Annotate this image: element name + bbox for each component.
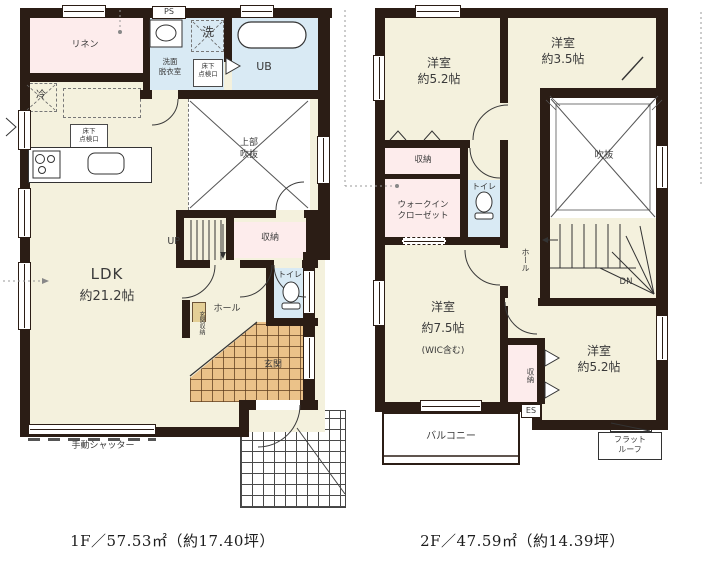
label-es: ES bbox=[521, 406, 541, 416]
label-wic: ウォークインクローゼット bbox=[389, 200, 457, 222]
label-manual-shutter: 手動シャッター bbox=[48, 441, 158, 453]
label-storage-2f-side: 収納 bbox=[510, 358, 535, 392]
label-entry-storage: 玄関収納 bbox=[193, 304, 205, 341]
label-storage-1f: 収納 bbox=[240, 233, 300, 245]
label-entry: 玄関 bbox=[254, 360, 292, 372]
wall-segment bbox=[306, 218, 318, 260]
window bbox=[420, 400, 482, 412]
label-dn: DN bbox=[612, 277, 640, 288]
window bbox=[240, 5, 274, 18]
window-wic-hatched bbox=[402, 237, 446, 245]
wall-segment bbox=[30, 73, 145, 82]
label-balcony: バルコニー bbox=[408, 430, 494, 443]
label-linen: リネン bbox=[55, 40, 115, 52]
door-opening bbox=[500, 248, 508, 286]
label-hall-1f: ホール bbox=[205, 304, 249, 316]
wall-segment bbox=[532, 420, 668, 430]
door-opening bbox=[182, 268, 190, 300]
front-door-opening bbox=[256, 400, 300, 410]
wall-segment bbox=[224, 18, 232, 62]
label-ldk: LDK約21.2帖 bbox=[57, 264, 157, 306]
wall-segment bbox=[540, 88, 550, 306]
label-room-7_5: 洋室約7.5帖(WIC含む) bbox=[399, 296, 487, 358]
door-opening bbox=[276, 210, 304, 218]
label-ub: UB bbox=[244, 60, 284, 74]
label-room-5_2-bottom: 洋室約5.2帖 bbox=[563, 344, 635, 375]
label-void-2f: 吹抜 bbox=[588, 150, 620, 162]
label-fridge: 冷 bbox=[28, 89, 54, 102]
wall-segment bbox=[318, 8, 330, 260]
window bbox=[303, 336, 315, 380]
floor-plan-canvas: リネン 冷 洗 PS 洗面脱衣室 床下点検口 床下点検口 UB 上部吹抜 UP … bbox=[0, 0, 707, 561]
label-floor-hatch-kitchen: 床下点検口 bbox=[71, 127, 107, 144]
label-washer: 洗 bbox=[196, 25, 220, 41]
door-opening bbox=[505, 298, 538, 306]
kitchen-counter bbox=[28, 147, 152, 183]
floor-base-2f-ext bbox=[540, 400, 658, 422]
wall-segment bbox=[460, 148, 468, 245]
window bbox=[373, 55, 385, 101]
wall-segment bbox=[140, 90, 152, 99]
window bbox=[62, 5, 106, 18]
wall-segment bbox=[178, 90, 330, 99]
wall-segment bbox=[266, 318, 318, 326]
window bbox=[656, 145, 668, 189]
label-room-5_2-top: 洋室約5.2帖 bbox=[408, 56, 470, 87]
window bbox=[373, 280, 385, 326]
window bbox=[317, 136, 330, 184]
label-washroom: 洗面脱衣室 bbox=[146, 57, 194, 77]
wall-segment bbox=[500, 140, 508, 245]
window bbox=[18, 110, 31, 150]
wall-segment bbox=[537, 338, 545, 404]
door-opening bbox=[500, 103, 508, 140]
window-ldk-sliding bbox=[28, 424, 156, 435]
window bbox=[18, 262, 31, 330]
counter-dashed bbox=[63, 88, 141, 118]
label-toilet-2f: トイレ bbox=[470, 182, 498, 192]
window bbox=[656, 315, 668, 361]
wall-segment bbox=[239, 400, 249, 437]
room-bath-ub bbox=[232, 18, 318, 90]
wall-segment bbox=[540, 88, 668, 98]
label-room-3_5: 洋室約3.5帖 bbox=[528, 36, 598, 67]
wall-segment bbox=[656, 8, 668, 430]
wall-segment bbox=[226, 218, 234, 260]
label-ps: PS bbox=[152, 7, 186, 17]
window bbox=[415, 5, 461, 18]
label-storage-2f-top: 収納 bbox=[395, 155, 451, 166]
caption-1f-area: 1F／57.53㎡（約17.40坪） bbox=[40, 530, 305, 551]
caption-2f-area: 2F／47.59㎡（約14.39坪） bbox=[390, 530, 655, 551]
label-flat-roof: フラットルーフ bbox=[600, 435, 660, 456]
wall-segment bbox=[385, 174, 460, 179]
door-opening bbox=[274, 260, 302, 268]
left-wall-vent-arrow bbox=[6, 118, 16, 136]
window bbox=[303, 270, 315, 314]
door-opening bbox=[152, 90, 178, 99]
window bbox=[18, 188, 31, 238]
door-opening bbox=[210, 260, 240, 268]
label-hall-2f: ホール bbox=[517, 238, 530, 282]
label-void-above: 上部吹抜 bbox=[227, 138, 271, 161]
door-opening bbox=[470, 140, 500, 148]
label-up: UP bbox=[152, 236, 180, 248]
label-floor-hatch-washroom: 床下点検口 bbox=[193, 62, 223, 79]
label-toilet-1f: トイレ bbox=[276, 270, 304, 280]
wall-segment bbox=[266, 268, 274, 320]
